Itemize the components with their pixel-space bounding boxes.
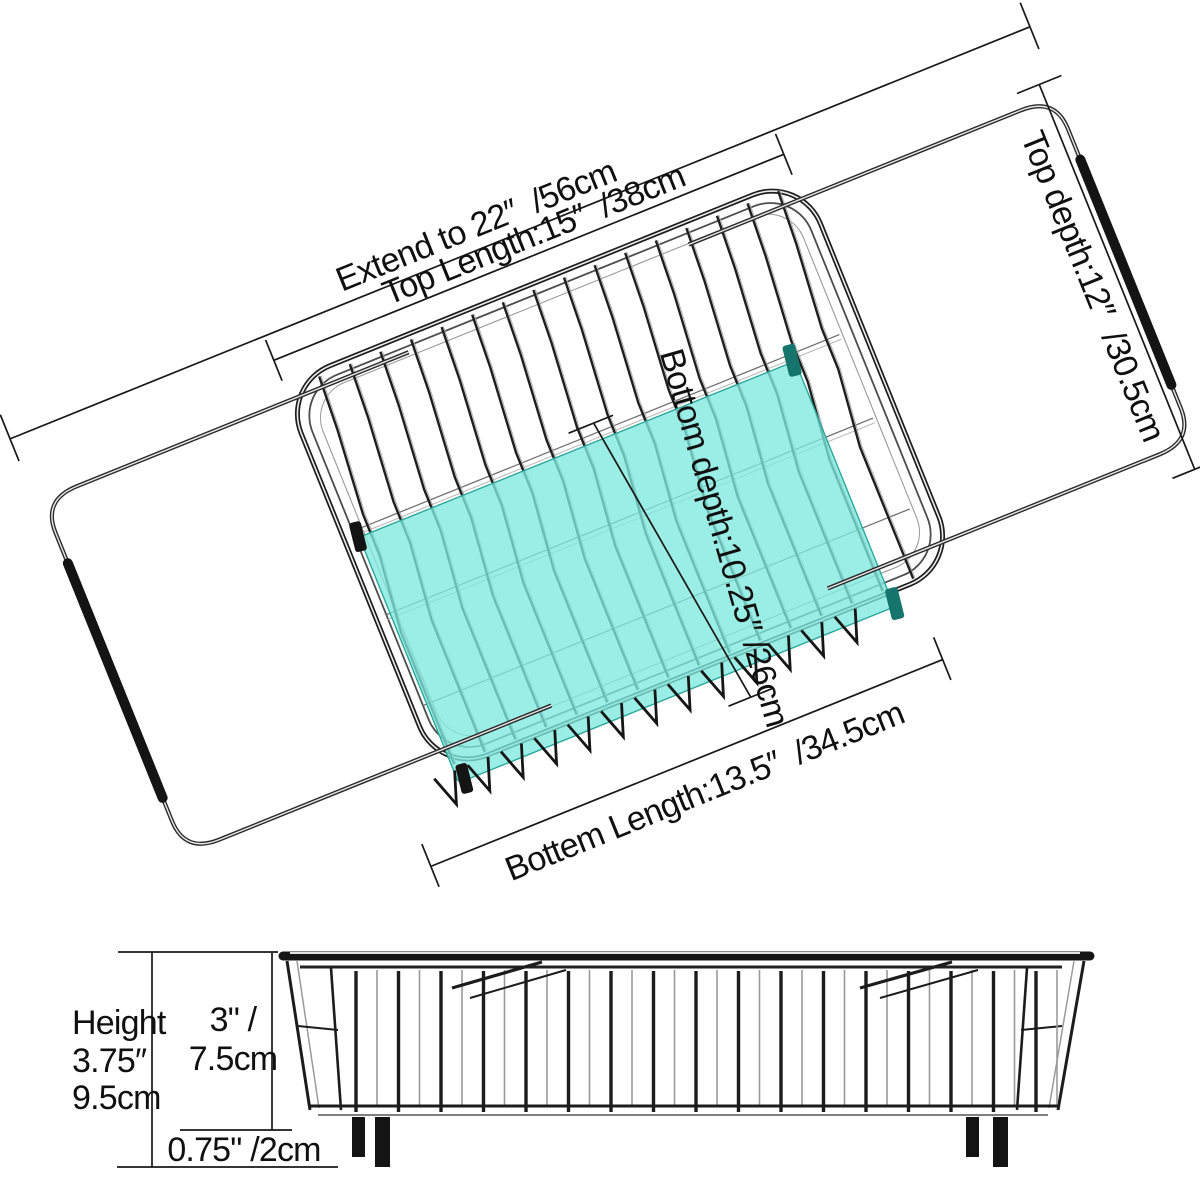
diagram-svg: Extend to 22″ /56cm Top Length:15″ /38cm…	[0, 0, 1200, 1200]
wall-wire	[297, 961, 319, 1108]
foot	[993, 1117, 1008, 1167]
top-depth-dimension-label: Top depth:12″ /30.5cm	[1013, 126, 1172, 447]
top-length-dimension: Top Length:15″ /38cm	[260, 119, 792, 381]
foot	[375, 1117, 390, 1167]
side-left-wall	[287, 961, 341, 1110]
top-depth-dimension-tick	[1172, 460, 1200, 478]
wall-rung	[1021, 1026, 1062, 1030]
foot-height-label: 0.75" /2cm	[167, 1131, 320, 1169]
wall-wire	[1017, 968, 1027, 1110]
wall-wire	[331, 968, 341, 1110]
extend-dimension-tick	[0, 415, 19, 461]
height-label-cm: 9.5cm	[72, 1079, 161, 1117]
left-arm-rubber-grip	[68, 563, 163, 798]
wall-rung	[298, 1026, 338, 1030]
foot	[352, 1117, 365, 1157]
top-length-dimension-tick	[776, 134, 792, 175]
side-view: Height 3.75″ 9.5cm 3" / 7.5cm 0.75" /2cm	[72, 952, 1090, 1169]
bottom-length-dimension-tick	[934, 637, 951, 680]
side-vertical-bars	[356, 970, 1057, 1112]
feet	[352, 1117, 1008, 1167]
dish-rack-dimension-diagram: Extend to 22″ /56cm Top Length:15″ /38cm…	[0, 0, 1200, 1200]
basket-height-label-inches: 3" /	[210, 1001, 258, 1039]
top-length-dimension-tick	[266, 340, 282, 381]
wall-wire	[287, 961, 310, 1110]
top-depth-dimension-line	[1039, 85, 1194, 470]
side-right-wall	[1017, 961, 1084, 1110]
bottom-length-dimension-tick	[422, 844, 439, 887]
height-label-inches: 3.75″	[72, 1042, 147, 1080]
height-label-word: Height	[72, 1004, 167, 1042]
top-depth-dimension: Top depth:12″ /30.5cm	[998, 76, 1200, 487]
top-view: Extend to 22″ /56cm Top Length:15″ /38cm…	[0, 0, 1200, 1001]
foot	[966, 1117, 979, 1157]
extend-dimension-tick	[1020, 3, 1039, 49]
top-depth-dimension-tick	[1017, 76, 1062, 94]
basket-height-label-cm: 7.5cm	[189, 1040, 278, 1078]
